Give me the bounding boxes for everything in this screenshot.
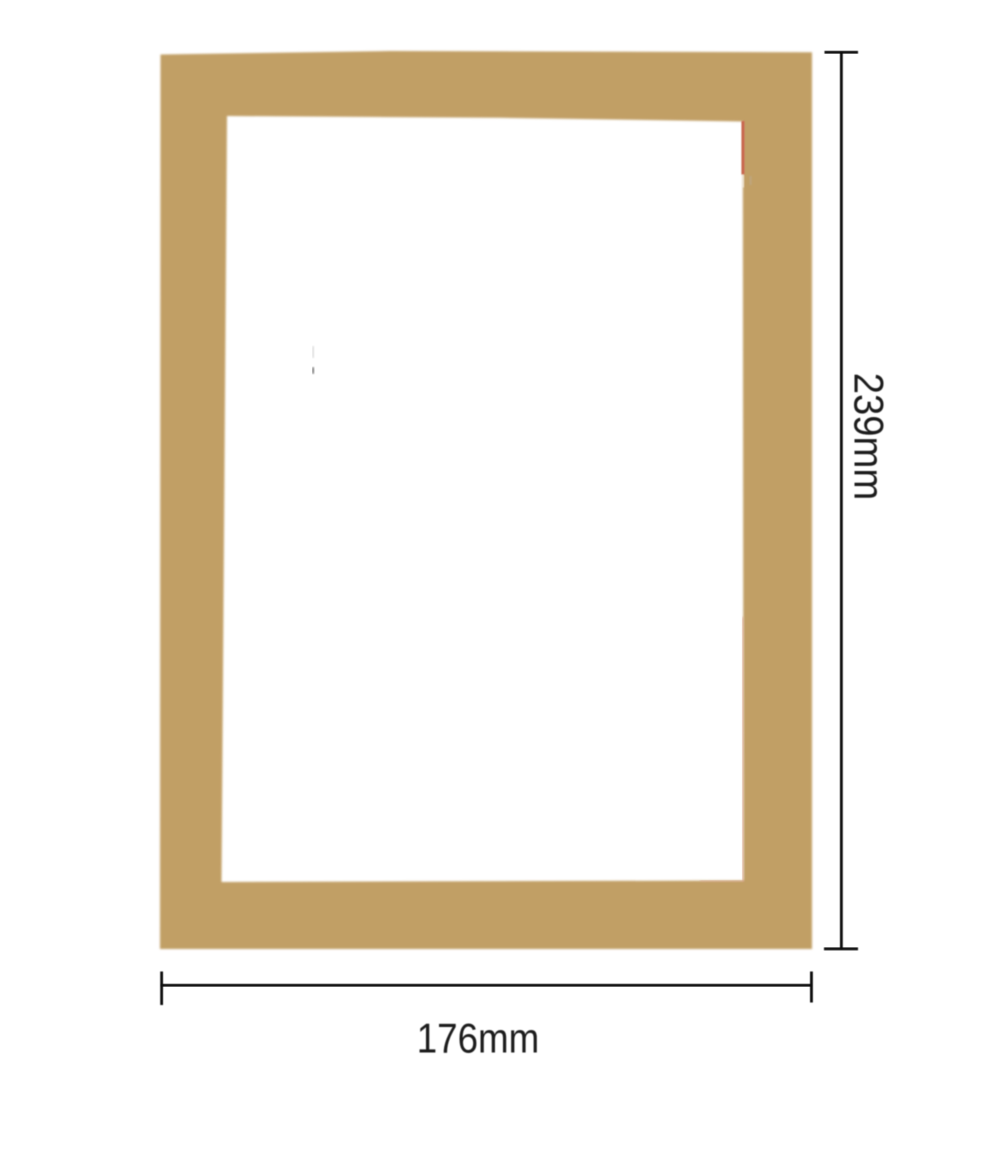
svg-text:239mm: 239mm xyxy=(846,373,893,501)
svg-text:176mm: 176mm xyxy=(417,1014,540,1061)
